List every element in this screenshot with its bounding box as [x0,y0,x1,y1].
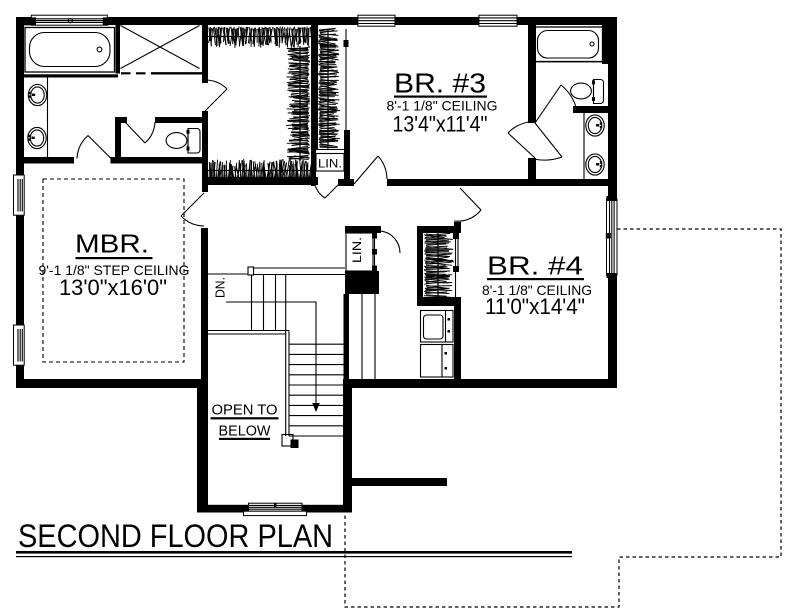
svg-text:BELOW: BELOW [219,423,272,440]
svg-text:LIN.: LIN. [318,157,342,171]
svg-text:MBR.: MBR. [75,229,149,259]
svg-text:DN.: DN. [213,277,228,298]
svg-text:LIN.: LIN. [350,237,364,263]
svg-text:BR. #4: BR. #4 [487,251,583,281]
svg-text:13'4"x11'4": 13'4"x11'4" [393,112,488,137]
svg-text:OPEN TO: OPEN TO [212,402,278,419]
svg-text:13'0"x16'0": 13'0"x16'0" [59,275,167,300]
svg-text:BR. #3: BR. #3 [394,68,486,99]
svg-text:11'0"x14'4": 11'0"x14'4" [485,294,585,319]
svg-text:SECOND FLOOR PLAN: SECOND FLOOR PLAN [18,518,333,554]
